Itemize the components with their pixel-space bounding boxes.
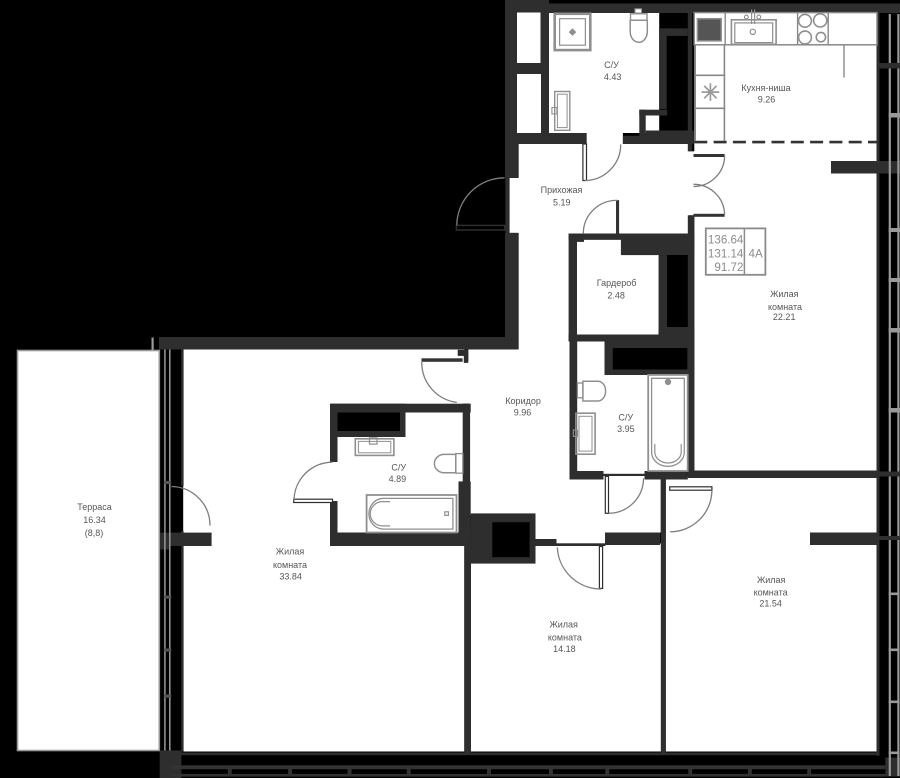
svg-text:Гардероб: Гардероб [597,278,637,288]
svg-text:4.43: 4.43 [604,72,622,82]
svg-text:16.34: 16.34 [83,515,106,525]
svg-text:136.64: 136.64 [708,234,744,247]
svg-text:131.14: 131.14 [708,248,744,261]
svg-text:14.18: 14.18 [553,644,576,654]
svg-text:Жилая: Жилая [549,620,578,630]
svg-text:9.96: 9.96 [514,408,532,418]
svg-text:4А: 4А [749,248,763,261]
svg-text:Жилая: Жилая [757,575,786,585]
svg-text:21.54: 21.54 [759,598,782,608]
svg-text:Прихожая: Прихожая [541,185,583,195]
svg-text:(8,8): (8,8) [85,528,104,538]
svg-text:Жилая: Жилая [770,289,799,299]
svg-text:Кухня-ниша: Кухня-ниша [741,83,790,93]
svg-text:Коридор: Коридор [505,396,541,406]
svg-text:Терраса: Терраса [77,502,112,512]
svg-text:Жилая: Жилая [276,546,305,556]
svg-text:33.84: 33.84 [279,571,302,581]
svg-text:2.48: 2.48 [607,290,625,300]
svg-text:4.89: 4.89 [389,474,407,484]
svg-text:9.26: 9.26 [758,95,776,105]
svg-text:комната: комната [768,302,802,312]
svg-text:С/У: С/У [391,463,406,473]
svg-text:3.95: 3.95 [617,424,635,434]
svg-text:91.72: 91.72 [714,261,743,274]
svg-text:С/У: С/У [618,413,633,423]
svg-text:С/У: С/У [604,60,619,70]
svg-text:22.21: 22.21 [773,312,796,322]
svg-text:комната: комната [548,633,582,643]
svg-text:5.19: 5.19 [553,198,571,208]
svg-text:комната: комната [754,588,788,598]
svg-text:комната: комната [273,560,307,570]
